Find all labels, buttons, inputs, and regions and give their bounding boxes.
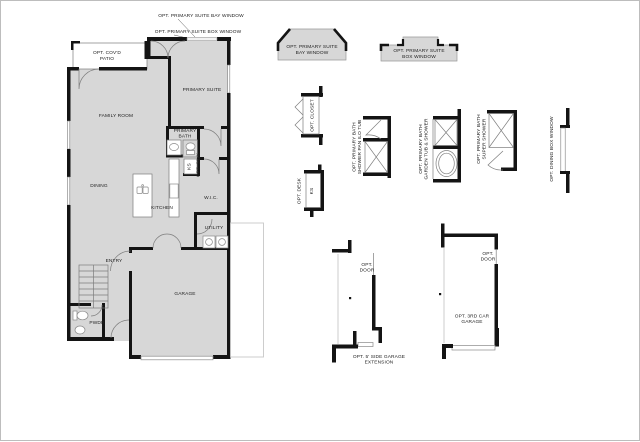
label-opt-desk: OPT. DESK	[297, 177, 303, 204]
shower-door-icon	[488, 151, 503, 170]
label-detail-box-line2: BOX WINDOW	[402, 54, 436, 60]
label-garden-tub-line2: GARDEN TUB & SHOWER	[424, 118, 430, 180]
label-3rd-opt-door: OPT.	[482, 251, 493, 257]
label-wic: W.I.C.	[204, 195, 218, 201]
garage-door-sill	[141, 356, 213, 360]
label-side-garage-ext-line2: EXTENSION	[365, 360, 394, 366]
label-super-shower-line2: SUPER SHOWER	[482, 118, 488, 159]
detail-super-shower: OPT. PRIMARY BATH SUPER SHOWER	[476, 110, 517, 171]
main-floor-plan: OPT. COV'D PATIO OPT. PRIMARY SUITE BAY …	[67, 13, 264, 360]
bath-sink-icon	[170, 144, 179, 151]
range-symbol	[170, 184, 178, 198]
kitchen-island	[133, 174, 152, 217]
label-primary-suite: PRIMARY SUITE	[183, 87, 222, 93]
detail-dining-box-window: OPT. DINING BOX WINDOW	[549, 108, 570, 193]
detail-opt-closet: OPT. CLOSET	[295, 86, 323, 145]
label-detail-bay-line2: BAY WINDOW	[296, 50, 329, 56]
label-ks: KS	[187, 163, 193, 170]
label-desk-ks: KS	[309, 188, 315, 195]
bifold-doors-icon	[295, 99, 303, 133]
label-3rd-car-garage: OPT. 3RD CAR	[455, 314, 490, 320]
floorplan-canvas: OPT. COV'D PATIO OPT. PRIMARY SUITE BAY …	[0, 0, 640, 441]
garden-tub-icon	[436, 151, 457, 177]
label-primary-bath-line2: BATH	[179, 134, 192, 140]
label-detail-box: OPT. PRIMARY SUITE	[393, 48, 444, 54]
pwdr-sink-icon	[75, 326, 85, 334]
label-3rd-car-garage-line2: GARAGE	[461, 319, 482, 325]
detail-side-garage-extension: OPT. DOOR OPT. 5' SIDE GARAGE EXTENSION	[332, 240, 405, 366]
floorplan-drawing: OPT. COV'D PATIO OPT. PRIMARY SUITE BAY …	[1, 1, 640, 442]
label-opt-sink: OPT. SINK	[196, 152, 202, 177]
shower-door-icon	[366, 120, 381, 139]
option-details: OPT. PRIMARY SUITE BAY WINDOW OPT. PRIMA…	[278, 29, 570, 366]
label-utility: UTILITY	[205, 225, 224, 231]
pwdr-toilet-icon	[77, 311, 88, 320]
label-garage: GARAGE	[174, 291, 195, 297]
label-entry: ENTRY	[106, 258, 123, 264]
label-family-room: FAMILY ROOM	[99, 113, 133, 119]
detail-third-car-garage: OPT. DOOR OPT. 3RD CAR GARAGE	[439, 224, 499, 360]
post-marker	[439, 293, 441, 295]
optional-extension-ghost	[231, 223, 264, 357]
detail-shower-pan: OPT. PRIMARY BATH SHOWER PAN ILO TUB	[352, 116, 392, 178]
label-covd-patio: OPT. COV'D	[93, 50, 121, 56]
label-super-shower: OPT. PRIMARY BATH	[476, 114, 482, 164]
label-primary-bath: PRIMARY	[174, 128, 197, 134]
label-kitchen: KITCHEN	[151, 205, 173, 211]
label-covd-patio-line2: PATIO	[100, 56, 114, 62]
label-side-garage-ext: OPT. 5' SIDE GARAGE	[353, 354, 405, 360]
label-pwdr: PWDR	[89, 320, 105, 326]
window-callouts: OPT. PRIMARY SUITE BAY WINDOW OPT. PRIMA…	[155, 13, 244, 39]
label-dining-box-window: OPT. DINING BOX WINDOW	[549, 116, 555, 182]
label-shower-pan-line2: SHOWER PAN ILO TUB	[357, 120, 363, 175]
detail-opt-desk: KS OPT. DESK	[297, 165, 325, 218]
post-marker	[349, 297, 351, 299]
label-detail-bay: OPT. PRIMARY SUITE	[286, 44, 337, 50]
detail-box-window: OPT. PRIMARY SUITE BOX WINDOW	[381, 37, 457, 61]
detail-garden-tub: OPT. PRIMARY BATH GARDEN TUB & SHOWER	[418, 109, 461, 183]
toilet-icon	[186, 143, 195, 150]
label-3rd-opt-door-line2: DOOR	[481, 257, 496, 263]
label-opt-closet: OPT. CLOSET	[310, 99, 316, 132]
label-side-opt-door: OPT.	[361, 262, 372, 268]
callout-box-window: OPT. PRIMARY SUITE BOX WINDOW	[155, 29, 242, 35]
label-garden-tub: OPT. PRIMARY BATH	[418, 124, 424, 174]
label-shower-pan: OPT. PRIMARY BATH	[352, 122, 358, 172]
callout-bay-window: OPT. PRIMARY SUITE BAY WINDOW	[158, 13, 244, 19]
label-side-opt-door-line2: DOOR	[360, 268, 375, 274]
detail-bay-window: OPT. PRIMARY SUITE BAY WINDOW	[278, 29, 346, 60]
label-dining: DINING	[90, 183, 108, 189]
covered-patio: OPT. COV'D PATIO	[71, 41, 147, 69]
